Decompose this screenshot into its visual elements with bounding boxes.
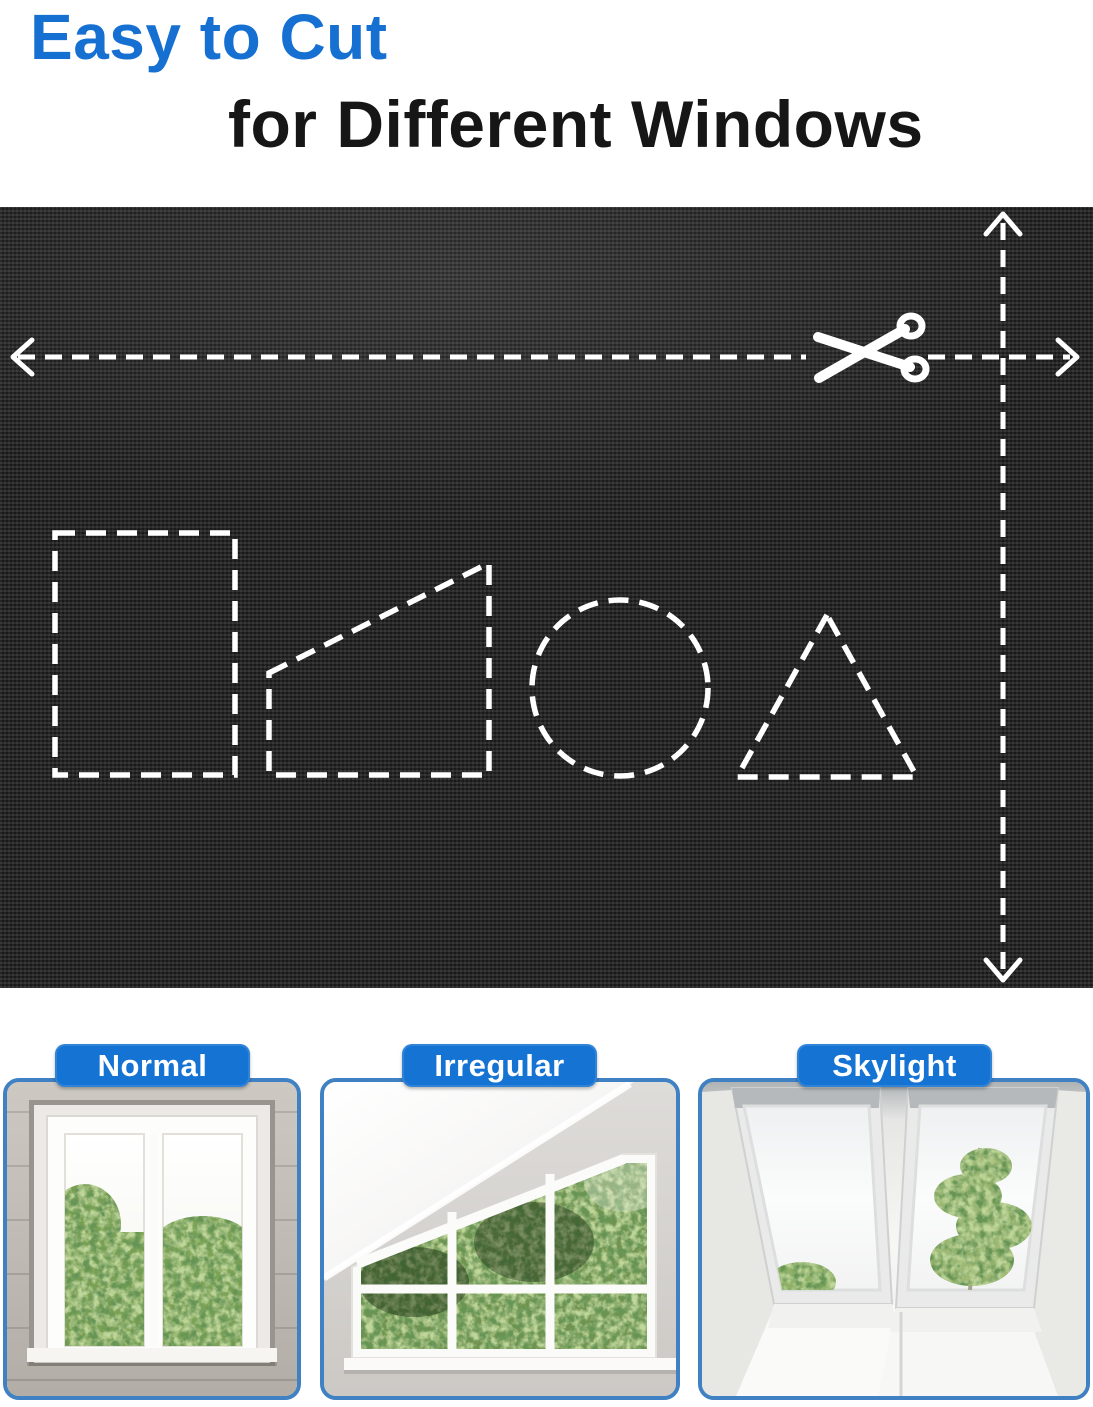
skylight-label: Skylight — [832, 1048, 957, 1084]
irregular-label-pill: Irregular — [402, 1044, 597, 1087]
cut-template-rectangle — [55, 533, 235, 775]
skylight-label-pill: Skylight — [797, 1044, 992, 1087]
product-infographic: Easy to Cut for Different Windows — [0, 0, 1093, 1407]
normal-window-photo — [7, 1082, 297, 1396]
fabric-panel — [0, 207, 1093, 988]
title-line-2: for Different Windows — [228, 90, 924, 159]
skylight-right-window — [890, 1088, 1058, 1332]
cut-template-circle — [532, 600, 708, 776]
normal-label-pill: Normal — [55, 1044, 250, 1087]
scissors-icon — [818, 316, 926, 379]
cut-template-trapezoid — [269, 563, 489, 775]
title-line-1: Easy to Cut — [30, 4, 388, 71]
card-skylight — [698, 1078, 1090, 1400]
skylight-window-photo — [702, 1082, 1086, 1396]
irregular-label: Irregular — [434, 1048, 564, 1084]
cut-template-triangle — [737, 615, 917, 777]
card-irregular — [320, 1078, 680, 1400]
card-normal — [3, 1078, 301, 1400]
irregular-window-photo — [324, 1082, 676, 1396]
cut-guides-overlay — [0, 207, 1093, 988]
normal-label: Normal — [98, 1048, 208, 1084]
